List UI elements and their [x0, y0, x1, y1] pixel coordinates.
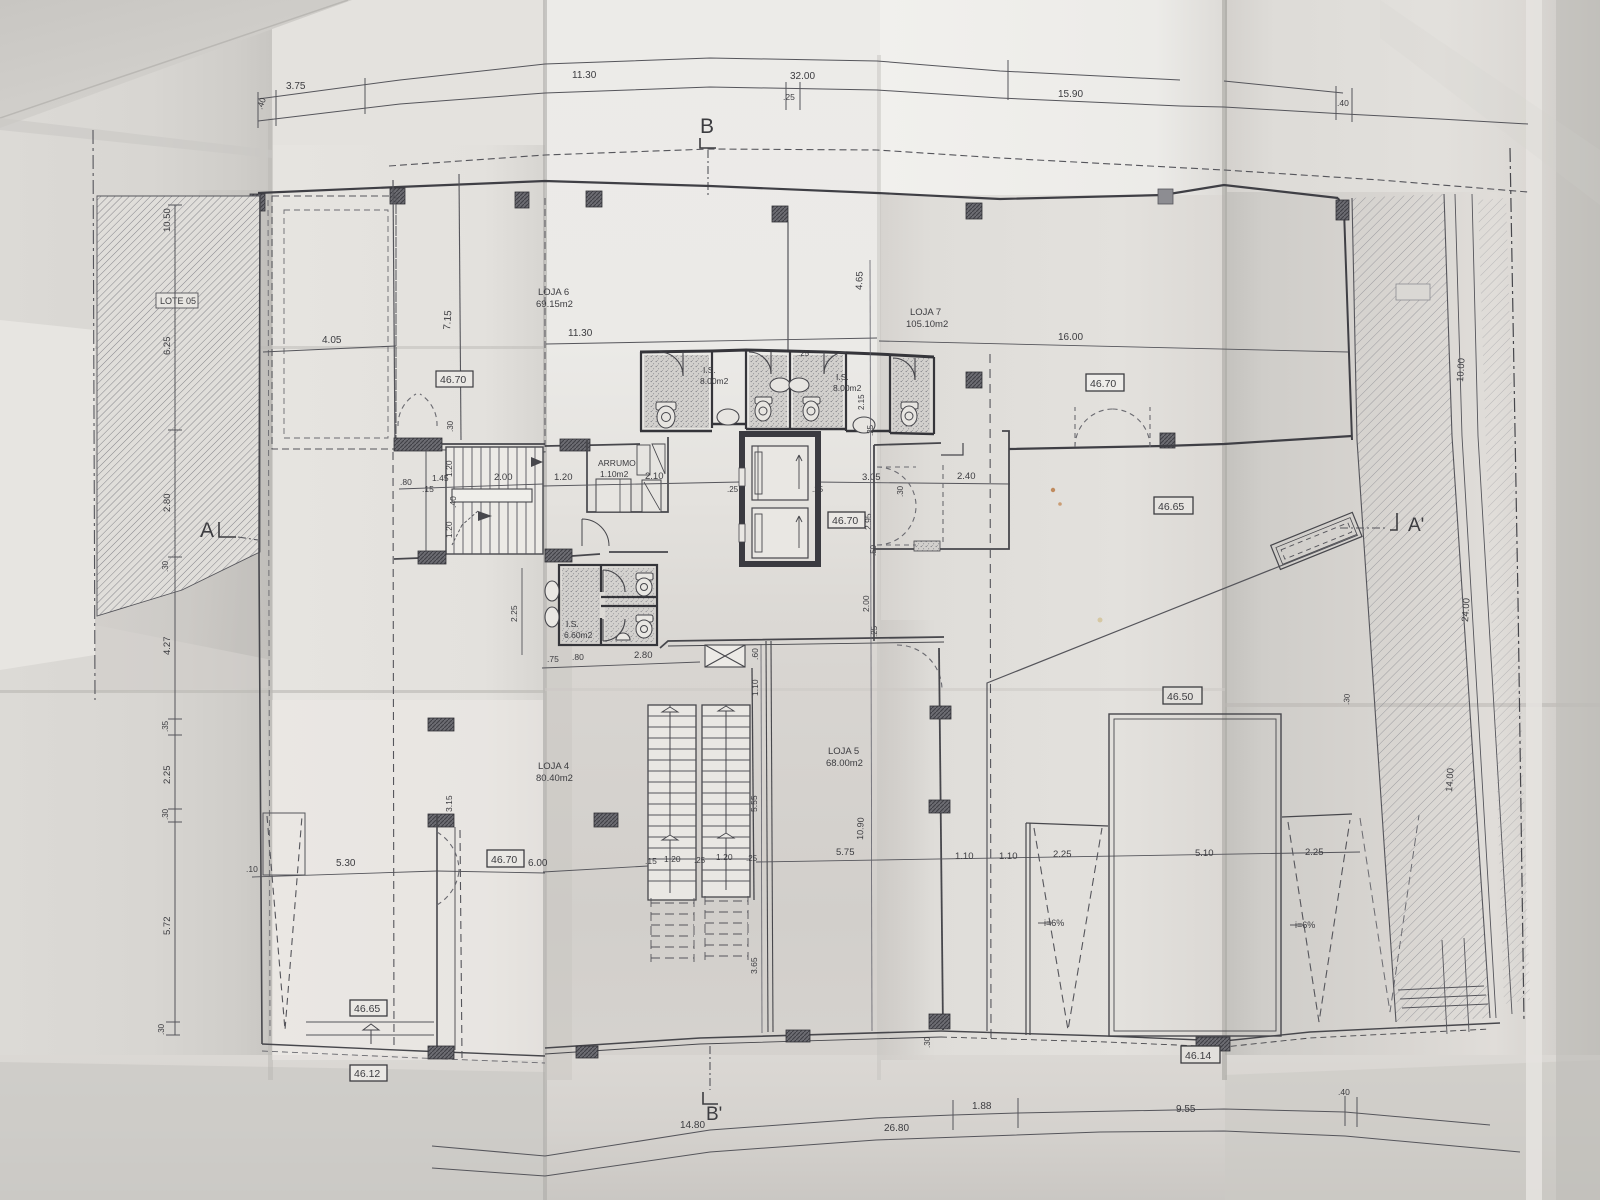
svg-text:14.00: 14.00 — [1444, 768, 1457, 792]
svg-text:2.40: 2.40 — [957, 471, 976, 482]
svg-text:2.95: 2.95 — [863, 513, 873, 530]
svg-text:46.65: 46.65 — [1158, 501, 1184, 513]
svg-text:10.90: 10.90 — [855, 817, 866, 840]
svg-text:.40: .40 — [448, 496, 458, 508]
svg-text:LOJA 4: LOJA 4 — [538, 761, 569, 772]
svg-text:1.88: 1.88 — [972, 1101, 992, 1112]
svg-text:68.00m2: 68.00m2 — [826, 758, 863, 769]
svg-text:2.25: 2.25 — [1305, 847, 1324, 858]
svg-text:5.55: 5.55 — [749, 795, 759, 812]
svg-text:6.00: 6.00 — [528, 858, 548, 869]
svg-text:.25: .25 — [727, 485, 739, 494]
svg-text:16.00: 16.00 — [1058, 332, 1083, 343]
svg-text:.30: .30 — [923, 1036, 932, 1048]
svg-text:LOJA 7: LOJA 7 — [910, 307, 941, 318]
svg-text:.30: .30 — [896, 485, 905, 497]
svg-text:5.72: 5.72 — [162, 917, 173, 936]
svg-text:.25: .25 — [746, 854, 758, 863]
svg-text:2.25: 2.25 — [1053, 849, 1072, 860]
svg-text:I.S.: I.S. — [566, 619, 579, 629]
svg-text:46.65: 46.65 — [354, 1003, 380, 1015]
svg-text:.15: .15 — [422, 484, 434, 494]
svg-text:A': A' — [1408, 515, 1424, 536]
svg-text:.40: .40 — [1337, 98, 1349, 108]
svg-text:1.20: 1.20 — [554, 472, 573, 483]
svg-text:1.10: 1.10 — [999, 851, 1018, 862]
svg-text:.30: .30 — [161, 560, 170, 572]
svg-text:46.50: 46.50 — [1167, 691, 1193, 703]
svg-text:3.75: 3.75 — [286, 81, 306, 92]
svg-text:LOTE 05: LOTE 05 — [160, 296, 196, 306]
svg-text:46.70: 46.70 — [1090, 378, 1116, 390]
svg-text:8.00m2: 8.00m2 — [700, 376, 729, 386]
svg-text:3.15: 3.15 — [444, 795, 454, 812]
svg-text:5.30: 5.30 — [336, 858, 356, 869]
svg-text:2.25: 2.25 — [509, 605, 519, 622]
svg-text:2.15: 2.15 — [857, 394, 866, 410]
svg-text:.25: .25 — [694, 856, 706, 865]
svg-text:.60: .60 — [750, 648, 760, 660]
svg-text:.30: .30 — [157, 1023, 166, 1035]
svg-text:15.90: 15.90 — [1058, 89, 1083, 100]
svg-text:ARRUMO: ARRUMO — [598, 458, 636, 468]
svg-text:46.70: 46.70 — [440, 374, 466, 386]
svg-text:6.60m2: 6.60m2 — [564, 630, 593, 640]
svg-text:5.10: 5.10 — [1195, 848, 1214, 859]
svg-text:11.30: 11.30 — [568, 328, 593, 339]
svg-text:3.05: 3.05 — [862, 472, 881, 483]
svg-text:B': B' — [706, 1104, 722, 1125]
svg-text:.30: .30 — [1342, 693, 1352, 705]
svg-text:1.10: 1.10 — [955, 851, 974, 862]
svg-text:.35: .35 — [161, 720, 170, 732]
svg-text:10.50: 10.50 — [162, 208, 173, 232]
svg-text:1.20: 1.20 — [664, 854, 681, 864]
svg-text:11.30: 11.30 — [572, 70, 597, 81]
svg-text:26.80: 26.80 — [884, 1123, 909, 1134]
svg-text:46.70: 46.70 — [832, 515, 858, 527]
svg-text:I.S.: I.S. — [836, 372, 849, 382]
svg-text:.25: .25 — [783, 92, 795, 102]
svg-text:2.80: 2.80 — [162, 494, 173, 513]
svg-text:5.75: 5.75 — [836, 847, 855, 858]
svg-text:.80: .80 — [400, 477, 412, 487]
svg-text:1.20: 1.20 — [716, 852, 733, 862]
svg-text:4.65: 4.65 — [854, 271, 866, 290]
svg-text:6.25: 6.25 — [162, 337, 173, 356]
svg-text:I.S.: I.S. — [703, 365, 716, 375]
svg-text:46.70: 46.70 — [491, 854, 517, 866]
svg-text:.80: .80 — [572, 652, 584, 662]
svg-text:LOJA 5: LOJA 5 — [828, 746, 859, 757]
svg-text:2.80: 2.80 — [634, 650, 653, 661]
svg-text:4.05: 4.05 — [322, 335, 342, 346]
svg-text:8.00m2: 8.00m2 — [833, 383, 862, 393]
svg-text:.40: .40 — [1338, 1087, 1350, 1097]
svg-text:.30: .30 — [161, 808, 170, 820]
svg-text:1.10m2: 1.10m2 — [600, 469, 629, 479]
svg-text:69.15m2: 69.15m2 — [536, 299, 573, 310]
svg-text:10.00: 10.00 — [1455, 358, 1468, 382]
svg-text:3.65: 3.65 — [749, 957, 759, 974]
svg-text:1.10: 1.10 — [750, 679, 760, 696]
svg-text:A: A — [200, 519, 214, 542]
svg-text:24.00: 24.00 — [1460, 598, 1473, 622]
svg-text:1.20: 1.20 — [444, 460, 454, 477]
svg-text:14.80: 14.80 — [680, 1120, 705, 1131]
svg-text:.10: .10 — [246, 864, 258, 874]
svg-text:.75: .75 — [547, 654, 559, 664]
svg-text:9.55: 9.55 — [1176, 1104, 1196, 1115]
svg-text:7.15: 7.15 — [442, 310, 454, 331]
svg-text:.30: .30 — [446, 420, 455, 432]
svg-text:1.20: 1.20 — [444, 521, 454, 538]
svg-text:46.14: 46.14 — [1185, 1050, 1211, 1062]
svg-text:2.00: 2.00 — [861, 595, 871, 612]
svg-text:.15: .15 — [645, 856, 657, 866]
svg-text:2.25: 2.25 — [162, 766, 173, 785]
svg-text:LOJA 6: LOJA 6 — [538, 287, 569, 298]
svg-text:B: B — [700, 115, 714, 138]
svg-text:46.12: 46.12 — [354, 1068, 380, 1080]
svg-text:80.40m2: 80.40m2 — [536, 773, 573, 784]
svg-text:2.00: 2.00 — [494, 472, 513, 483]
svg-text:4.27: 4.27 — [162, 637, 173, 656]
svg-text:.25: .25 — [798, 349, 810, 358]
svg-text:2.10: 2.10 — [645, 471, 664, 482]
svg-text:105.10m2: 105.10m2 — [906, 319, 948, 330]
svg-text:32.00: 32.00 — [790, 71, 815, 82]
